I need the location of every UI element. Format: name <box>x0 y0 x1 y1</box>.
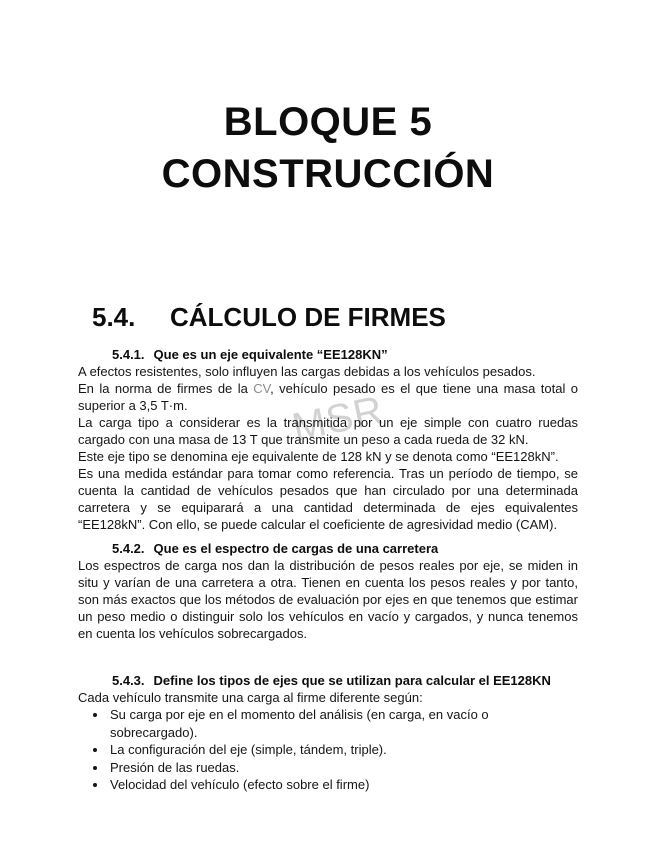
doc-title-line-2: CONSTRUCCIÓN <box>78 148 578 200</box>
document-title: BLOQUE 5 CONSTRUCCIÓN <box>78 96 578 200</box>
paragraph: La carga tipo a considerar es la transmi… <box>78 414 578 448</box>
subsection-3-number: 5.4.3. <box>112 672 145 689</box>
bullet-item: La configuración del eje (simple, tándem… <box>108 741 578 759</box>
section-heading: 5.4. CÁLCULO DE FIRMES <box>92 300 578 334</box>
bullet-item: Presión de las ruedas. <box>108 759 578 777</box>
paragraph: Cada vehículo transmite una carga al fir… <box>78 689 578 706</box>
subsection-1-title: Que es un eje equivalente “EE128KN” <box>154 346 388 363</box>
subsection-2-title: Que es el espectro de cargas de una carr… <box>154 540 439 557</box>
subsection-1-heading: 5.4.1. Que es un eje equivalente “EE128K… <box>112 346 578 363</box>
subsection-1-number: 5.4.1. <box>112 346 145 363</box>
paragraph-text: En la norma de firmes de la <box>78 381 253 396</box>
cv-reference: CV <box>253 381 270 396</box>
paragraph: Este eje tipo se denomina eje equivalent… <box>78 448 578 465</box>
paragraph: En la norma de firmes de la CV, vehículo… <box>78 380 578 414</box>
doc-title-line-1: BLOQUE 5 <box>78 96 578 148</box>
subsection-2-heading: 5.4.2. Que es el espectro de cargas de u… <box>112 540 578 557</box>
subsection-1-body: A efectos resistentes, solo influyen las… <box>78 363 578 533</box>
paragraph: Es una medida estándar para tomar como r… <box>78 465 578 533</box>
paragraph: A efectos resistentes, solo influyen las… <box>78 363 578 380</box>
bullet-item: Velocidad del vehículo (efecto sobre el … <box>108 776 578 794</box>
bullet-item: Su carga por eje en el momento del análi… <box>108 706 578 741</box>
subsection-3-title: Define los tipos de ejes que se utilizan… <box>154 672 551 689</box>
subsection-3-body: Cada vehículo transmite una carga al fir… <box>78 689 578 794</box>
paragraph: Los espectros de carga nos dan la distri… <box>78 557 578 642</box>
subsection-2-body: Los espectros de carga nos dan la distri… <box>78 557 578 642</box>
section-title: CÁLCULO DE FIRMES <box>170 300 446 334</box>
bullet-list: Su carga por eje en el momento del análi… <box>78 706 578 794</box>
subsection-2-number: 5.4.2. <box>112 540 145 557</box>
document-page: MSR BLOQUE 5 CONSTRUCCIÓN 5.4. CÁLCULO D… <box>0 0 655 848</box>
subsection-3-heading: 5.4.3. Define los tipos de ejes que se u… <box>112 672 578 689</box>
page-content: BLOQUE 5 CONSTRUCCIÓN 5.4. CÁLCULO DE FI… <box>78 0 578 794</box>
section-number: 5.4. <box>92 300 170 334</box>
